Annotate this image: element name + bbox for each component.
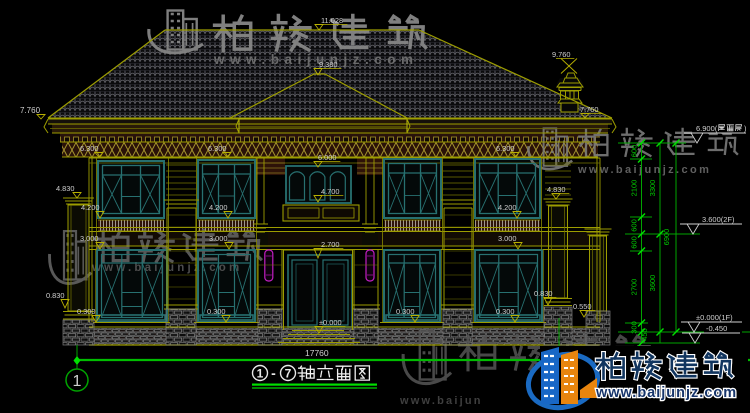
svg-text:3.000: 3.000 xyxy=(209,234,228,243)
svg-text:±0.000: ±0.000 xyxy=(319,318,342,327)
svg-text:6.300: 6.300 xyxy=(80,144,99,153)
svg-text:6.900(: 6.900( xyxy=(696,124,718,133)
svg-text:6.300: 6.300 xyxy=(496,144,515,153)
svg-text:300: 300 xyxy=(630,321,639,334)
svg-text:0.550: 0.550 xyxy=(573,302,592,311)
svg-text:3.000: 3.000 xyxy=(80,234,99,243)
svg-text:17760: 17760 xyxy=(305,348,329,358)
svg-text:0.300: 0.300 xyxy=(396,307,415,316)
svg-text:9.380: 9.380 xyxy=(319,60,338,69)
svg-text:7.760: 7.760 xyxy=(20,106,41,115)
svg-text:2.700: 2.700 xyxy=(321,240,340,249)
svg-text:3300: 3300 xyxy=(648,180,657,197)
svg-text:3600: 3600 xyxy=(648,275,657,292)
svg-text:4.700: 4.700 xyxy=(321,187,340,196)
svg-text:6900: 6900 xyxy=(662,229,671,246)
svg-text:600: 600 xyxy=(630,219,639,232)
svg-text:4.200: 4.200 xyxy=(209,203,228,212)
svg-text:-0.450: -0.450 xyxy=(706,324,727,333)
svg-text:4.830: 4.830 xyxy=(547,185,566,194)
svg-text:600: 600 xyxy=(630,236,639,249)
svg-text:600: 600 xyxy=(630,145,639,158)
svg-text:1: 1 xyxy=(73,373,82,390)
svg-text:7.760: 7.760 xyxy=(580,105,599,114)
svg-text:9.760: 9.760 xyxy=(552,50,571,59)
svg-text:2100: 2100 xyxy=(630,180,639,197)
svg-text:www.baijunjz.com: www.baijunjz.com xyxy=(595,385,737,401)
svg-text:0.300: 0.300 xyxy=(496,307,515,316)
svg-text:6.000: 6.000 xyxy=(318,153,337,162)
svg-text:2700: 2700 xyxy=(630,279,639,296)
svg-text:4.200: 4.200 xyxy=(498,203,517,212)
svg-text:450: 450 xyxy=(640,328,649,341)
svg-text:±0.000(1F): ±0.000(1F) xyxy=(696,313,733,322)
svg-text:www.baijunjz.com: www.baijunjz.com xyxy=(213,52,419,67)
svg-text:3.600(2F): 3.600(2F) xyxy=(702,215,735,224)
svg-text:0.300: 0.300 xyxy=(77,307,96,316)
svg-text:www.baijun: www.baijun xyxy=(399,395,483,407)
svg-text:7: 7 xyxy=(285,367,292,381)
svg-text:0.830: 0.830 xyxy=(46,291,65,300)
svg-text:0.300: 0.300 xyxy=(207,307,226,316)
svg-text:6.300: 6.300 xyxy=(208,144,227,153)
svg-text:-: - xyxy=(271,365,276,381)
svg-text:11.028: 11.028 xyxy=(321,16,343,25)
svg-text:1: 1 xyxy=(257,367,264,381)
svg-text:0.830: 0.830 xyxy=(534,289,553,298)
svg-text:3.000: 3.000 xyxy=(498,234,517,243)
svg-text:4.830: 4.830 xyxy=(56,184,75,193)
svg-text:4.200: 4.200 xyxy=(81,203,100,212)
